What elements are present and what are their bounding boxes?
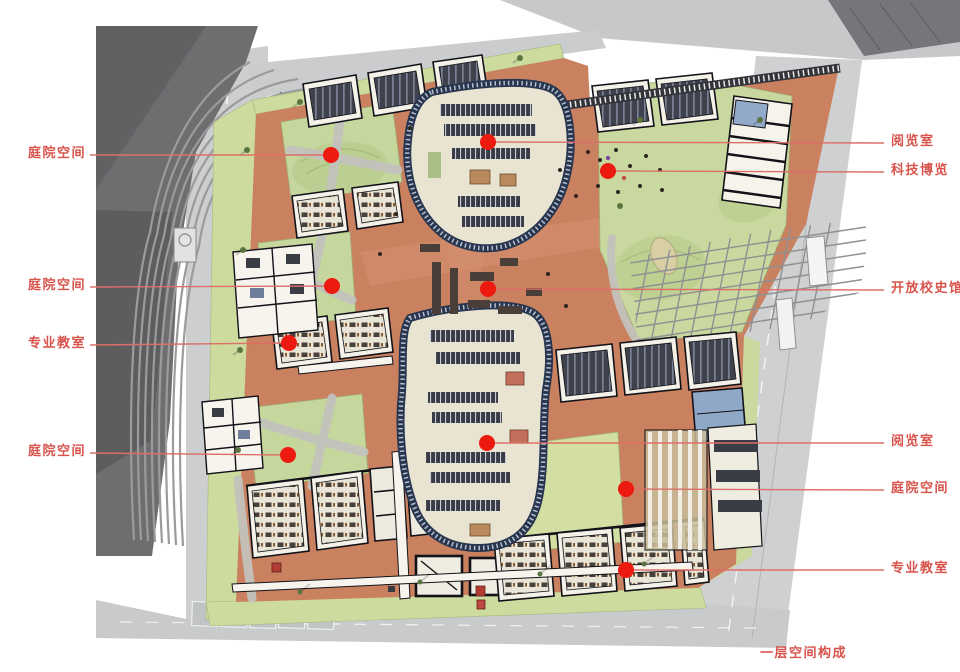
annotation-label: 阅览室: [891, 134, 935, 150]
annotation-label: 庭院空间: [891, 481, 949, 497]
annotation-label: 科技博览: [891, 163, 949, 179]
lower-blob-library: [401, 305, 550, 548]
plan-caption: 一层空间构成: [760, 642, 847, 661]
site-plan-rendering: [0, 0, 960, 672]
annotation-label: 庭院空间: [28, 146, 86, 162]
upper-blob-library: [407, 83, 570, 248]
annotation-label: 专业教室: [891, 561, 949, 577]
annotation-label: 庭院空间: [28, 444, 86, 460]
annotation-label: 开放校史馆: [891, 281, 960, 297]
annotation-label: 阅览室: [891, 434, 935, 450]
masterplan-page: 一层空间构成 庭院空间庭院空间专业教室庭院空间阅览室科技博览开放校史馆阅览室庭院…: [0, 0, 960, 672]
annotation-label: 庭院空间: [28, 278, 86, 294]
annotation-label: 专业教室: [28, 336, 86, 352]
